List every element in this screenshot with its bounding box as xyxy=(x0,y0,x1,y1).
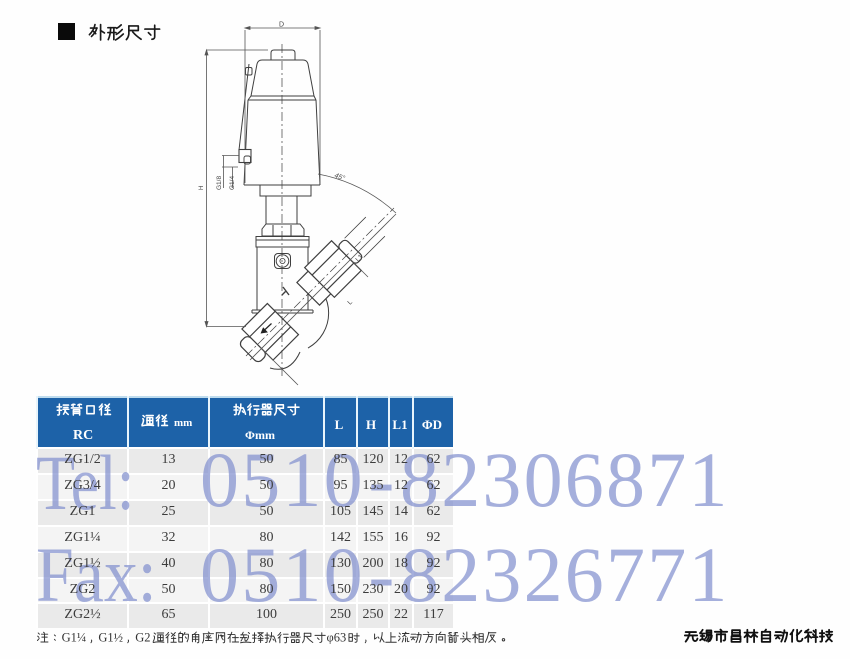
svg-text:H: H xyxy=(199,186,205,190)
svg-text:L: L xyxy=(335,417,344,432)
svg-text:G1½: G1½ xyxy=(98,631,123,645)
svg-text:mm: mm xyxy=(174,417,192,429)
svg-text:L1: L1 xyxy=(392,417,407,432)
svg-text:L: L xyxy=(346,299,354,307)
svg-text:G1/8: G1/8 xyxy=(216,176,223,190)
svg-text:Φmm: Φmm xyxy=(245,428,275,442)
svg-text:D: D xyxy=(279,22,284,29)
svg-text:H: H xyxy=(366,417,376,432)
svg-text:G1/4: G1/4 xyxy=(229,176,236,190)
svg-text:G2: G2 xyxy=(135,631,150,645)
svg-text:ΦD: ΦD xyxy=(422,417,442,432)
svg-text:G1¼: G1¼ xyxy=(62,631,87,645)
svg-text:φ63: φ63 xyxy=(327,631,347,645)
svg-text:RC: RC xyxy=(73,428,93,443)
